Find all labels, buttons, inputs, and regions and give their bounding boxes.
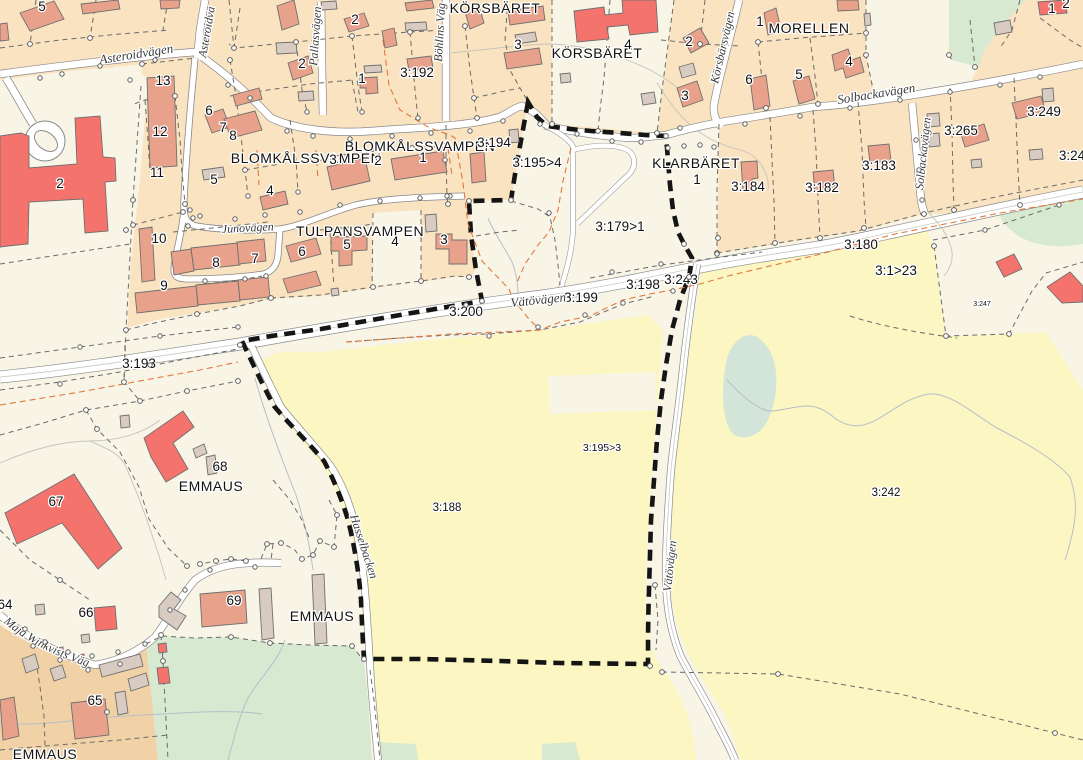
svg-text:3:195>3: 3:195>3 (583, 442, 621, 454)
svg-text:4: 4 (624, 37, 632, 52)
svg-text:3:182: 3:182 (805, 180, 839, 195)
svg-text:3:247: 3:247 (973, 301, 991, 308)
svg-text:1: 1 (358, 71, 366, 86)
svg-text:6: 6 (745, 72, 753, 87)
svg-text:4: 4 (845, 54, 853, 69)
svg-text:3:242: 3:242 (872, 487, 901, 499)
svg-text:6: 6 (298, 244, 306, 259)
svg-text:6: 6 (205, 103, 213, 118)
svg-text:2: 2 (298, 56, 306, 71)
svg-text:64: 64 (0, 597, 13, 612)
svg-text:EMMAUS: EMMAUS (13, 746, 77, 760)
svg-text:69: 69 (226, 593, 241, 608)
svg-text:3:195>4: 3:195>4 (512, 155, 562, 170)
svg-text:EMMAUS: EMMAUS (290, 608, 354, 624)
svg-text:65: 65 (87, 693, 102, 708)
svg-text:1: 1 (693, 172, 701, 187)
svg-text:5: 5 (210, 172, 218, 187)
svg-text:3: 3 (514, 37, 522, 52)
svg-text:11: 11 (150, 165, 164, 180)
svg-text:3:199: 3:199 (564, 290, 598, 305)
svg-text:3:198: 3:198 (626, 277, 660, 292)
svg-text:4: 4 (266, 183, 274, 198)
svg-text:3:194: 3:194 (477, 135, 511, 150)
svg-text:3:24: 3:24 (1059, 148, 1083, 163)
svg-text:3:183: 3:183 (862, 158, 896, 173)
svg-text:3:192: 3:192 (400, 65, 434, 80)
svg-text:3: 3 (681, 88, 689, 103)
svg-text:2: 2 (1062, 0, 1070, 11)
svg-text:5: 5 (795, 67, 803, 82)
svg-text:1: 1 (1048, 1, 1056, 16)
svg-text:4: 4 (391, 234, 399, 249)
svg-text:5: 5 (343, 237, 351, 252)
svg-text:3:249: 3:249 (1027, 104, 1061, 119)
svg-text:10: 10 (151, 231, 166, 246)
svg-text:2: 2 (351, 12, 359, 27)
svg-text:66: 66 (78, 605, 93, 620)
svg-text:3:243: 3:243 (664, 272, 698, 287)
svg-text:2: 2 (374, 153, 382, 168)
svg-text:MORELLEN: MORELLEN (768, 20, 849, 36)
svg-text:3: 3 (329, 152, 337, 167)
svg-text:3:265: 3:265 (944, 123, 978, 138)
svg-text:68: 68 (212, 459, 227, 474)
svg-text:2: 2 (685, 34, 693, 49)
svg-text:TULPANSVAMPEN: TULPANSVAMPEN (296, 223, 424, 239)
svg-text:1: 1 (419, 150, 427, 165)
svg-text:EMMAUS: EMMAUS (179, 478, 243, 494)
svg-text:3:184: 3:184 (731, 179, 765, 194)
svg-text:3: 3 (440, 232, 448, 247)
svg-text:7: 7 (251, 251, 259, 266)
svg-text:BLOMKÅLSSVAMPEN: BLOMKÅLSSVAMPEN (231, 150, 381, 166)
svg-text:3:179>1: 3:179>1 (595, 219, 644, 234)
svg-text:3:180: 3:180 (844, 237, 878, 252)
svg-text:5: 5 (38, 0, 46, 14)
svg-text:KÖRSBÄRET: KÖRSBÄRET (450, 0, 541, 16)
svg-text:13: 13 (155, 73, 170, 88)
svg-text:7: 7 (219, 120, 227, 135)
svg-text:KLARBÄRET: KLARBÄRET (652, 155, 740, 171)
svg-text:3:188: 3:188 (433, 502, 462, 514)
svg-text:67: 67 (48, 494, 63, 509)
svg-text:8: 8 (229, 128, 237, 143)
svg-text:1: 1 (756, 14, 764, 29)
svg-text:9: 9 (160, 278, 168, 293)
svg-text:3:1>23: 3:1>23 (875, 263, 917, 278)
svg-text:2: 2 (56, 176, 64, 191)
svg-text:12: 12 (152, 124, 167, 139)
svg-text:Junovägen: Junovägen (221, 219, 274, 236)
svg-text:8: 8 (212, 255, 220, 270)
